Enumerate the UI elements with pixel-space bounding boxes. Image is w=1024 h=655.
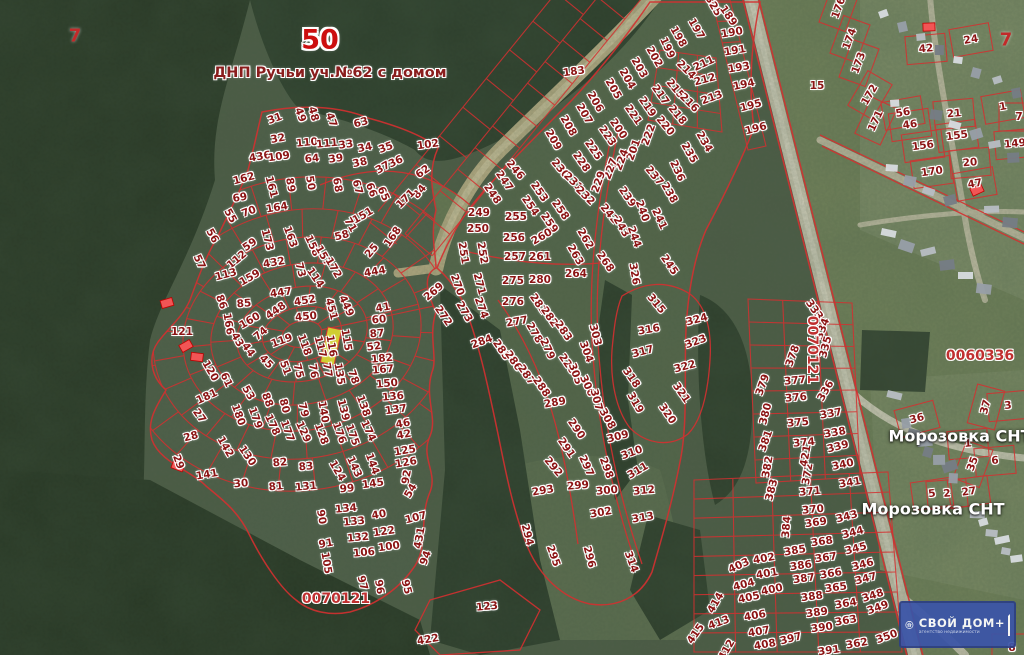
plot-number-label: 106 xyxy=(353,547,376,559)
plot-number-label: 123 xyxy=(476,601,499,613)
plot-number-label: 380 xyxy=(758,402,774,426)
plot-number-label: 172 xyxy=(860,83,880,107)
plot-number-label: 292 xyxy=(542,455,564,479)
plot-number-label: 390 xyxy=(810,621,833,634)
plot-number-label: 88 xyxy=(260,391,275,408)
plot-number-label: 376 xyxy=(785,392,808,404)
plot-number-label: 171 xyxy=(867,109,886,133)
plot-number-label: 27 xyxy=(191,407,208,425)
plot-number-label: 271 xyxy=(471,272,487,296)
plot-number-label: 48 xyxy=(306,106,320,123)
region-label: 7 xyxy=(1000,30,1013,51)
plot-number-label: 350 xyxy=(875,628,899,645)
plot-number-label: 173 xyxy=(850,51,867,75)
plot-number-label: 193 xyxy=(727,61,750,75)
plot-number-label: 24 xyxy=(963,34,979,47)
place-name-label: Морозовка СНТ xyxy=(861,500,1004,519)
plot-number-label: 444 xyxy=(363,265,386,279)
plot-number-label: 177 xyxy=(278,419,295,443)
plot-number-label: 25 xyxy=(363,242,380,260)
plot-number-label: 73 xyxy=(293,262,307,279)
plot-number-label: 408 xyxy=(753,638,776,652)
plot-number-label: 371 xyxy=(799,486,822,498)
plot-number-label: 85 xyxy=(236,298,251,310)
plot-number-label: 407 xyxy=(747,625,770,639)
plot-number-label: 156 xyxy=(911,139,934,152)
plot-number-label: 60 xyxy=(371,314,386,326)
plot-number-label: 339 xyxy=(826,439,850,455)
plot-number-label: 377 xyxy=(784,375,807,387)
plot-number-label: 431 xyxy=(413,526,427,549)
plot-number-label: 363 xyxy=(834,614,857,628)
plot-number-label: 368 xyxy=(810,535,833,548)
cadastre-number: 0070121 xyxy=(302,591,370,607)
plot-number-label: 6 xyxy=(991,455,999,466)
plot-number-label: 42 xyxy=(396,429,412,442)
plot-number-label: 56 xyxy=(895,107,911,120)
plot-number-label: 179 xyxy=(246,406,263,430)
plot-number-label: 197 xyxy=(686,17,706,41)
plot-number-label: 405 xyxy=(737,591,761,606)
plot-number-label: 381 xyxy=(757,429,774,453)
region-label: 50 xyxy=(301,25,339,56)
plot-number-label: 119 xyxy=(270,332,294,349)
plot-number-label: 195 xyxy=(739,98,763,114)
plot-number-label: 111 xyxy=(316,138,339,150)
plot-number-label: 136 xyxy=(382,391,405,403)
plot-number-label: 21 xyxy=(946,108,961,120)
plot-number-label: 312 xyxy=(633,485,656,497)
plot-number-label: 30 xyxy=(233,478,248,490)
plot-number-label: 65 xyxy=(375,185,391,203)
plot-number-label: 114 xyxy=(304,266,325,290)
plot-number-label: 412 xyxy=(717,638,737,655)
plot-number-label: 35 xyxy=(377,141,394,156)
plot-number-label: 132 xyxy=(347,532,370,544)
plot-number-label: 173 xyxy=(259,228,275,252)
plot-number-label: 315 xyxy=(645,292,667,316)
plot-number-label: 175 xyxy=(343,423,360,447)
plot-number-label: 340 xyxy=(831,458,855,473)
plot-number-label: 252 xyxy=(475,241,489,264)
plot-number-label: 365 xyxy=(824,581,847,594)
plot-number-label: 94 xyxy=(419,549,434,566)
plot-number-label: 61 xyxy=(218,371,234,389)
plot-number-label: 236 xyxy=(668,159,687,183)
plot-number-label: 44 xyxy=(240,341,257,359)
plot-number-label: 401 xyxy=(755,567,778,581)
plot-number-label: 190 xyxy=(720,26,743,40)
plot-number-label: 137 xyxy=(384,403,407,416)
plot-number-label: 140 xyxy=(316,400,330,423)
plot-number-label: 58 xyxy=(334,229,351,243)
plot-number-label: 97 xyxy=(355,575,369,592)
plot-number-label: 366 xyxy=(819,567,842,581)
plot-number-label: 447 xyxy=(269,286,292,299)
highlighted-plot-number: 116 xyxy=(324,334,338,357)
plot-number-label: 143 xyxy=(345,455,364,479)
plot-number-label: 29 xyxy=(171,453,186,470)
plot-number-label: 122 xyxy=(372,525,395,538)
plot-number-label: 319 xyxy=(625,391,645,415)
plot-number-label: 183 xyxy=(562,65,585,78)
plot-number-label: 155 xyxy=(945,129,968,142)
map-title: ДНП Ручьи уч.№62 с домом xyxy=(213,65,446,81)
plot-number-label: 74 xyxy=(252,325,270,342)
plot-number-label: 386 xyxy=(789,559,812,572)
plot-number-label: 235 xyxy=(679,141,699,165)
plot-number-label: 322 xyxy=(673,359,697,375)
plot-number-label: 69 xyxy=(232,192,248,205)
plot-number-label: 450 xyxy=(295,311,318,323)
plot-number-label: 145 xyxy=(361,477,384,490)
plot-number-label: 452 xyxy=(293,294,316,308)
plot-number-label: 256 xyxy=(503,233,525,244)
agency-brand: СВОЙ ДОМ+ xyxy=(919,616,1005,630)
plot-number-label: 96 xyxy=(373,579,386,595)
plot-number-label: 45 xyxy=(257,353,275,371)
plot-number-label: 268 xyxy=(594,250,615,274)
agency-emblem-icon xyxy=(905,608,914,642)
plot-number-label: 321 xyxy=(670,381,691,405)
plot-number-label: 400 xyxy=(760,583,784,598)
plot-number-label: 31 xyxy=(266,112,283,127)
plot-number-label: 323 xyxy=(684,333,708,350)
plot-number-label: 290 xyxy=(565,417,586,441)
plot-number-label: 164 xyxy=(265,201,288,215)
plot-number-label: 36 xyxy=(909,412,926,426)
plot-number-label: 387 xyxy=(792,572,815,585)
plot-number-label: 341 xyxy=(838,476,861,490)
plot-number-label: 403 xyxy=(727,557,751,576)
plot-number-label: 46 xyxy=(902,119,918,131)
plot-number-label: 55 xyxy=(222,207,238,225)
plot-number-label: 115 xyxy=(339,328,353,351)
plot-number-label: 300 xyxy=(596,485,619,497)
plot-number-label: 196 xyxy=(744,121,768,137)
plot-number-label: 345 xyxy=(844,541,868,557)
agency-logo[interactable]: СВОЙ ДОМ+ агентство недвижимости xyxy=(899,601,1016,648)
plot-number-label: 83 xyxy=(298,461,313,473)
plot-number-label: 87 xyxy=(369,328,384,340)
plot-number-label: 131 xyxy=(295,481,318,493)
plot-number-label: 78 xyxy=(346,368,361,385)
plot-number-label: 118 xyxy=(295,333,312,357)
plot-number-label: 167 xyxy=(372,364,395,376)
plot-number-label: 391 xyxy=(817,644,840,655)
plot-number-label: 134 xyxy=(335,503,358,515)
plot-number-label: 189 xyxy=(717,4,738,28)
plot-number-label: 264 xyxy=(565,269,587,280)
plot-number-label: 50 xyxy=(304,175,317,191)
plot-number-label: 432 xyxy=(262,256,285,270)
plot-number-label: 261 xyxy=(529,252,551,263)
plot-number-label: 191 xyxy=(723,44,746,58)
label-layer: 3149484763321101113334351024361096439383… xyxy=(0,0,1024,655)
plot-number-label: 448 xyxy=(264,300,288,321)
plot-number-label: 141 xyxy=(195,468,218,482)
plot-number-label: 284 xyxy=(470,333,494,350)
plot-number-label: 273 xyxy=(454,300,474,324)
plot-number-label: 170 xyxy=(920,165,943,178)
plot-number-label: 367 xyxy=(814,551,837,564)
plot-number-label: 90 xyxy=(315,509,328,525)
plot-number-label: 40 xyxy=(371,509,387,522)
plot-number-label: 343 xyxy=(835,509,859,525)
plot-number-label: 241 xyxy=(650,207,669,231)
plot-number-label: 171 xyxy=(395,188,418,211)
plot-number-label: 62 xyxy=(414,164,432,181)
plot-number-label: 299 xyxy=(567,480,590,492)
plot-number-label: 302 xyxy=(589,506,612,520)
plot-number-label: 389 xyxy=(805,606,828,619)
plot-number-label: 129 xyxy=(294,420,313,444)
plot-number-label: 279 xyxy=(538,337,557,361)
plot-number-label: 255 xyxy=(505,212,527,223)
plot-number-label: 144 xyxy=(363,452,380,476)
plot-number-label: 385 xyxy=(783,544,806,558)
plot-number-label: 294 xyxy=(519,523,535,547)
plot-number-label: 52 xyxy=(366,341,382,353)
plot-number-label: 105 xyxy=(319,551,333,574)
plot-number-label: 130 xyxy=(236,444,257,468)
plot-number-label: 138 xyxy=(354,394,371,418)
plot-number-label: 47 xyxy=(324,111,339,128)
plot-number-label: 288 xyxy=(530,375,551,399)
plot-number-label: 53 xyxy=(240,384,256,402)
plot-number-label: 362 xyxy=(845,637,868,651)
plot-number-label: 205 xyxy=(603,77,623,101)
plot-number-label: 383 xyxy=(764,478,780,502)
plot-number-label: 275 xyxy=(502,276,524,287)
cadastre-number: 0070121 xyxy=(804,316,820,384)
plot-number-label: 326 xyxy=(627,262,641,285)
plot-number-label: 5 xyxy=(928,488,937,499)
plot-number-label: 126 xyxy=(394,456,417,470)
plot-number-label: 76 xyxy=(307,363,320,379)
plot-number-label: 213 xyxy=(700,89,724,106)
plot-number-label: 75 xyxy=(291,363,305,380)
plot-number-label: 28 xyxy=(183,430,200,444)
plot-number-label: 364 xyxy=(834,597,857,611)
plot-number-label: 176 xyxy=(830,0,847,20)
plot-number-label: 67 xyxy=(350,179,364,196)
plot-number-label: 63 xyxy=(353,116,370,130)
plot-number-label: 180 xyxy=(229,403,246,427)
plot-number-label: 38 xyxy=(352,156,368,169)
plot-number-label: 102 xyxy=(416,138,439,151)
plot-number-label: 347 xyxy=(854,571,878,587)
plot-number-label: 149 xyxy=(1004,138,1024,150)
plot-number-label: 296 xyxy=(581,545,597,569)
plot-number-label: 382 xyxy=(761,455,775,478)
plot-number-label: 95 xyxy=(399,579,413,596)
plot-number-label: 194 xyxy=(732,78,756,93)
plot-number-label: 234 xyxy=(694,130,714,154)
plot-number-label: 270 xyxy=(448,273,465,297)
plot-number-label: 274 xyxy=(472,296,489,320)
map-viewport[interactable]: 3149484763321101113334351024361096439383… xyxy=(0,0,1024,655)
plot-number-label: 295 xyxy=(544,544,561,568)
plot-number-label: 172 xyxy=(323,256,343,280)
plot-number-label: 86 xyxy=(214,293,229,310)
plot-number-label: 7 xyxy=(1015,112,1022,123)
plot-number-label: 120 xyxy=(200,359,220,383)
plot-number-label: 415 xyxy=(685,622,706,646)
plot-number-label: 174 xyxy=(359,419,378,443)
plot-number-label: 406 xyxy=(743,609,766,623)
plot-number-label: 113 xyxy=(214,267,238,283)
plot-number-label: 209 xyxy=(543,128,563,152)
plot-number-label: 68 xyxy=(331,177,344,193)
plot-number-label: 375 xyxy=(787,417,810,429)
plot-number-label: 166 xyxy=(221,312,235,335)
plot-number-label: 249 xyxy=(468,208,490,219)
plot-number-label: 414 xyxy=(706,591,726,615)
plot-number-label: 100 xyxy=(377,540,400,553)
plot-number-label: 413 xyxy=(707,614,731,631)
plot-number-label: 379 xyxy=(754,373,771,397)
plot-number-label: 297 xyxy=(577,454,596,478)
plot-number-label: 128 xyxy=(312,422,329,446)
plot-number-label: 37 xyxy=(979,399,993,416)
plot-number-label: 310 xyxy=(620,444,644,461)
plot-number-label: 109 xyxy=(267,150,290,163)
agency-subtext: агентство недвижимости xyxy=(919,630,1005,636)
plot-number-label: 2 xyxy=(943,488,951,499)
plot-number-label: 32 xyxy=(270,133,286,146)
plot-number-label: 27 xyxy=(961,486,977,498)
plot-number-label: 42 xyxy=(918,43,933,55)
plot-number-label: 80 xyxy=(277,398,291,415)
plot-number-label: 99 xyxy=(339,483,354,495)
plot-number-label: 39 xyxy=(328,153,344,165)
cadastre-number: 0060336 xyxy=(946,348,1014,364)
place-name-label: Морозовка СНТ xyxy=(888,427,1024,446)
plot-number-label: 397 xyxy=(779,631,803,647)
plot-number-label: 318 xyxy=(620,366,641,390)
plot-number-label: 251 xyxy=(456,241,470,264)
plot-number-label: 20 xyxy=(962,157,977,169)
plot-number-label: 79 xyxy=(296,402,310,419)
plot-number-label: 238 xyxy=(659,181,679,205)
plot-number-label: 283 xyxy=(552,319,573,343)
plot-number-label: 229 xyxy=(590,170,607,194)
plot-number-label: 369 xyxy=(804,516,827,529)
plot-number-label: 47 xyxy=(967,178,983,191)
plot-number-label: 208 xyxy=(558,114,578,138)
plot-number-label: 3 xyxy=(1004,400,1012,411)
plot-number-label: 1 xyxy=(998,101,1007,113)
plot-number-label: 245 xyxy=(658,253,679,277)
plot-number-label: 33 xyxy=(338,139,354,151)
plot-number-label: 280 xyxy=(529,275,551,286)
plot-number-label: 250 xyxy=(467,224,489,235)
plot-number-label: 269 xyxy=(422,281,446,303)
plot-number-label: 384 xyxy=(781,516,793,539)
plot-number-label: 81 xyxy=(268,481,283,493)
plot-number-label: 222 xyxy=(640,123,657,147)
plot-number-label: 56 xyxy=(204,227,220,245)
plot-number-label: 70 xyxy=(240,205,257,220)
plot-number-label: 181 xyxy=(195,388,219,407)
plot-number-label: 163 xyxy=(281,225,298,249)
plot-number-label: 260 xyxy=(530,227,554,247)
plot-number-label: 311 xyxy=(626,461,650,481)
plot-number-label: 91 xyxy=(318,538,334,551)
plot-number-label: 168 xyxy=(382,225,403,249)
plot-number-label: 344 xyxy=(841,525,865,541)
plot-number-label: 34 xyxy=(357,141,373,154)
plot-number-label: 51 xyxy=(278,359,293,376)
plot-number-label: 337 xyxy=(819,407,842,421)
plot-number-label: 135 xyxy=(332,362,346,385)
plot-number-label: 276 xyxy=(502,297,524,308)
plot-number-label: 54 xyxy=(403,482,419,500)
plot-number-label: 244 xyxy=(625,225,642,249)
plot-number-label: 89 xyxy=(284,177,297,193)
plot-number-label: 159 xyxy=(238,268,262,288)
plot-number-label: 161 xyxy=(263,175,279,199)
plot-number-label: 298 xyxy=(597,456,614,480)
plot-number-label: 320 xyxy=(656,402,677,426)
plot-number-label: 142 xyxy=(215,435,235,459)
plot-number-label: 309 xyxy=(606,429,630,445)
plot-number-label: 82 xyxy=(272,457,287,469)
plot-number-label: 121 xyxy=(171,327,193,338)
plot-number-label: 64 xyxy=(304,153,319,165)
plot-number-label: 313 xyxy=(631,511,654,525)
plot-number-label: 257 xyxy=(504,252,526,263)
plot-number-label: 378 xyxy=(784,344,801,368)
plot-number-label: 422 xyxy=(416,633,439,647)
plot-number-label: 107 xyxy=(404,510,428,526)
plot-number-label: 293 xyxy=(531,484,554,498)
plot-number-label: 15 xyxy=(810,81,825,92)
plot-number-label: 133 xyxy=(343,516,366,528)
plot-number-label: 291 xyxy=(555,436,576,460)
plot-number-label: 174 xyxy=(841,27,858,51)
plot-number-label: 402 xyxy=(752,552,775,566)
plot-number-label: 388 xyxy=(800,590,823,603)
plot-number-label: 370 xyxy=(802,504,825,516)
plot-number-label: 150 xyxy=(376,378,399,390)
plot-number-label: 449 xyxy=(337,294,356,318)
plot-number-label: 162 xyxy=(232,171,256,187)
plot-number-label: 317 xyxy=(631,344,655,360)
region-label: 7 xyxy=(69,26,82,47)
plot-number-label: 316 xyxy=(637,323,660,337)
plot-number-label: 272 xyxy=(432,304,453,328)
plot-number-label: 139 xyxy=(335,398,351,422)
plot-number-label: 57 xyxy=(191,253,207,271)
plot-number-label: 124 xyxy=(327,459,347,483)
plot-number-label: 308 xyxy=(597,407,617,431)
plot-number-label: 314 xyxy=(622,550,639,574)
plot-number-label: 35 xyxy=(966,455,981,472)
plot-number-label: 324 xyxy=(685,312,709,328)
plot-number-label: 289 xyxy=(543,396,566,410)
